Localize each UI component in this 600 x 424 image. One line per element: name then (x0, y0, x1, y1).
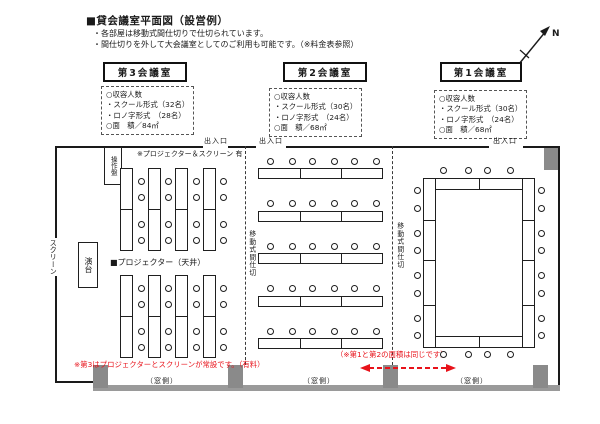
conference-table (175, 209, 188, 251)
chair (414, 290, 421, 297)
table-divider (424, 305, 435, 306)
table-divider (479, 179, 480, 189)
room1-info: ○収容人数 ・スクール形式（30名） ・ロノ字形式 （24名） ○面 積／68㎡ (434, 90, 527, 139)
chair (193, 237, 200, 244)
chair (538, 315, 545, 322)
room3-red-note: ※第3はプロジェクターとスクリーンが常設です。（有料） (74, 359, 265, 370)
chair (165, 328, 172, 335)
conference-table (120, 316, 133, 358)
room1-info-line: ○面 積／68㎡ (439, 125, 522, 135)
chair (465, 167, 472, 174)
partition-label-right: 移動式間仕切 (396, 222, 403, 269)
chair (138, 178, 145, 185)
chair (414, 187, 421, 194)
table-divider (523, 220, 534, 221)
wall-top-3 (286, 146, 489, 148)
conference-table (148, 316, 161, 358)
table-divider (523, 260, 534, 261)
screen-label: スクリーン (50, 238, 57, 276)
chair (193, 301, 200, 308)
table-divider (341, 339, 342, 348)
chair (465, 351, 472, 358)
chair (267, 285, 274, 292)
chair (267, 328, 274, 335)
window-side-label-room1: （窓側） (456, 376, 488, 386)
room2-info: ○収容人数 ・スクール形式（30名） ・ロノ字形式 （24名） ○面 積／68㎡ (269, 88, 362, 137)
conference-table (258, 296, 383, 307)
chair (331, 285, 338, 292)
chair (484, 167, 491, 174)
chair (414, 230, 421, 237)
north-arrow-icon: N (505, 14, 565, 69)
room3-info-line: ○収容人数 (106, 90, 189, 100)
chair (165, 237, 172, 244)
chair (289, 200, 296, 207)
page-note-1: ・各部屋は移動式間仕切りで仕切られています。 (93, 28, 268, 39)
chair (220, 221, 227, 228)
chair (138, 344, 145, 351)
conference-table (258, 253, 383, 264)
chair (193, 221, 200, 228)
table-divider (300, 339, 301, 348)
table-divider (479, 337, 480, 347)
chair (440, 351, 447, 358)
chair (193, 178, 200, 185)
conference-table (203, 209, 216, 251)
chair (165, 178, 172, 185)
chair (331, 243, 338, 250)
chair (351, 243, 358, 250)
room2-info-line: ・ロノ字形式 （24名） (274, 113, 357, 123)
table-divider (300, 297, 301, 306)
chair (538, 187, 545, 194)
table-divider (300, 169, 301, 178)
conference-table (258, 211, 383, 222)
room3-info-line: ・スクール形式（32名） (106, 100, 189, 110)
chair (414, 247, 421, 254)
north-label: N (552, 29, 560, 39)
table-divider (300, 254, 301, 263)
wall-right (558, 146, 560, 391)
conference-table (423, 178, 436, 348)
window-side-label-room2: （窓側） (303, 376, 335, 386)
chair (138, 194, 145, 201)
chair (351, 158, 358, 165)
chair (351, 328, 358, 335)
chair (193, 344, 200, 351)
chair (414, 272, 421, 279)
chair (267, 158, 274, 165)
wall-bottom-left (55, 381, 95, 383)
table-divider (424, 220, 435, 221)
pillar (544, 148, 558, 170)
chair (538, 272, 545, 279)
table-divider (424, 260, 435, 261)
chair (267, 243, 274, 250)
wall-top-2 (228, 146, 256, 148)
partition-label-left: 移動式間仕切 (248, 230, 255, 277)
room2-title-text: 第2会議室 (298, 65, 353, 79)
same-area-arrow-icon (360, 362, 456, 374)
chair (507, 167, 514, 174)
conference-table (175, 275, 188, 317)
table-divider (341, 297, 342, 306)
chair (414, 332, 421, 339)
chair (289, 158, 296, 165)
chair (414, 315, 421, 322)
ceiling-projector-label: ■プロジェクター（天井） (110, 257, 205, 268)
chair (309, 158, 316, 165)
table-divider (341, 254, 342, 263)
podium-label: 演台 (84, 257, 92, 273)
room2-title: 第2会議室 (283, 62, 367, 82)
conference-table (522, 178, 535, 348)
chair (538, 290, 545, 297)
room3-title: 第3会議室 (103, 62, 187, 82)
conference-table (258, 338, 383, 349)
chair (538, 205, 545, 212)
conference-table (148, 275, 161, 317)
chair (220, 328, 227, 335)
rental-meeting-room-floor-plan: ■貸会議室平面図（設営例） ・各部屋は移動式間仕切りで仕切られています。 ・間仕… (0, 0, 600, 424)
conference-table (203, 168, 216, 210)
conference-table (175, 316, 188, 358)
exit-label-room1: 出入口 (493, 136, 517, 146)
room2-info-line: ・スクール形式（30名） (274, 102, 357, 112)
exit-label-room3: 出入口 (204, 136, 228, 146)
chair (165, 221, 172, 228)
table-divider (341, 212, 342, 221)
room3-title-text: 第3会議室 (118, 65, 173, 79)
chair (165, 301, 172, 308)
chair (193, 285, 200, 292)
chair (220, 301, 227, 308)
chair (138, 301, 145, 308)
chair (507, 351, 514, 358)
conference-table (120, 275, 133, 317)
projector-screen-note: ※プロジェクター＆スクリーン 有 (137, 149, 242, 159)
chair (138, 237, 145, 244)
chair (351, 285, 358, 292)
chair (309, 285, 316, 292)
chair (373, 243, 380, 250)
chair (289, 285, 296, 292)
chair (538, 247, 545, 254)
chair (138, 221, 145, 228)
room1-info-line: ・スクール形式（30名） (439, 104, 522, 114)
page-note-2: ・間仕切りを外して大会議室としてのご利用も可能です。（※料金表参照） (93, 39, 358, 50)
conference-table (148, 209, 161, 251)
chair (289, 243, 296, 250)
conference-table (203, 316, 216, 358)
chair (138, 285, 145, 292)
window-side-label-room3: （窓側） (146, 376, 178, 386)
conference-table (148, 168, 161, 210)
room1-info-line: ・ロノ字形式 （24名） (439, 115, 522, 125)
chair (373, 328, 380, 335)
chair (440, 167, 447, 174)
table-divider (523, 305, 534, 306)
chair (165, 285, 172, 292)
chair (351, 200, 358, 207)
chair (193, 328, 200, 335)
chair (373, 158, 380, 165)
chair (331, 328, 338, 335)
chair (309, 243, 316, 250)
chair (309, 200, 316, 207)
conference-table (258, 168, 383, 179)
room2-info-line: ○収容人数 (274, 92, 357, 102)
chair (414, 205, 421, 212)
page-title: ■貸会議室平面図（設営例） (86, 13, 228, 28)
chair (138, 328, 145, 335)
control-panel-label: 操作盤 (110, 156, 117, 176)
pillar (533, 365, 548, 388)
room1-info-line: ○収容人数 (439, 94, 522, 104)
chair (220, 194, 227, 201)
room3-info-line: ・ロノ字形式 （28名） (106, 111, 189, 121)
room1-title: 第1会議室 (440, 62, 522, 82)
chair (193, 194, 200, 201)
chair (331, 200, 338, 207)
table-divider (341, 169, 342, 178)
chair (373, 285, 380, 292)
chair (220, 285, 227, 292)
conference-table (203, 275, 216, 317)
conference-table (175, 168, 188, 210)
chair (220, 178, 227, 185)
chair (289, 328, 296, 335)
chair (484, 351, 491, 358)
movable-partition-line (245, 146, 246, 365)
chair (267, 200, 274, 207)
chair (165, 344, 172, 351)
room1-title-text: 第1会議室 (454, 65, 509, 79)
chair (331, 158, 338, 165)
movable-partition-line (392, 146, 393, 365)
conference-table (120, 209, 133, 251)
chair (309, 328, 316, 335)
room3-info: ○収容人数 ・スクール形式（32名） ・ロノ字形式 （28名） ○面 積／84㎡ (101, 86, 194, 135)
wall-top-1 (55, 146, 203, 148)
chair (220, 344, 227, 351)
chair (538, 332, 545, 339)
chair (538, 230, 545, 237)
chair (373, 200, 380, 207)
room12-red-note: （※第1と第2の面積は同じです） (336, 349, 448, 360)
room3-info-line: ○面 積／84㎡ (106, 121, 189, 131)
podium-box: 演台 (78, 242, 98, 288)
chair (220, 237, 227, 244)
conference-table (120, 168, 133, 210)
room2-info-line: ○面 積／68㎡ (274, 123, 357, 133)
exit-label-room2: 出入口 (259, 136, 283, 146)
chair (165, 194, 172, 201)
table-divider (300, 212, 301, 221)
